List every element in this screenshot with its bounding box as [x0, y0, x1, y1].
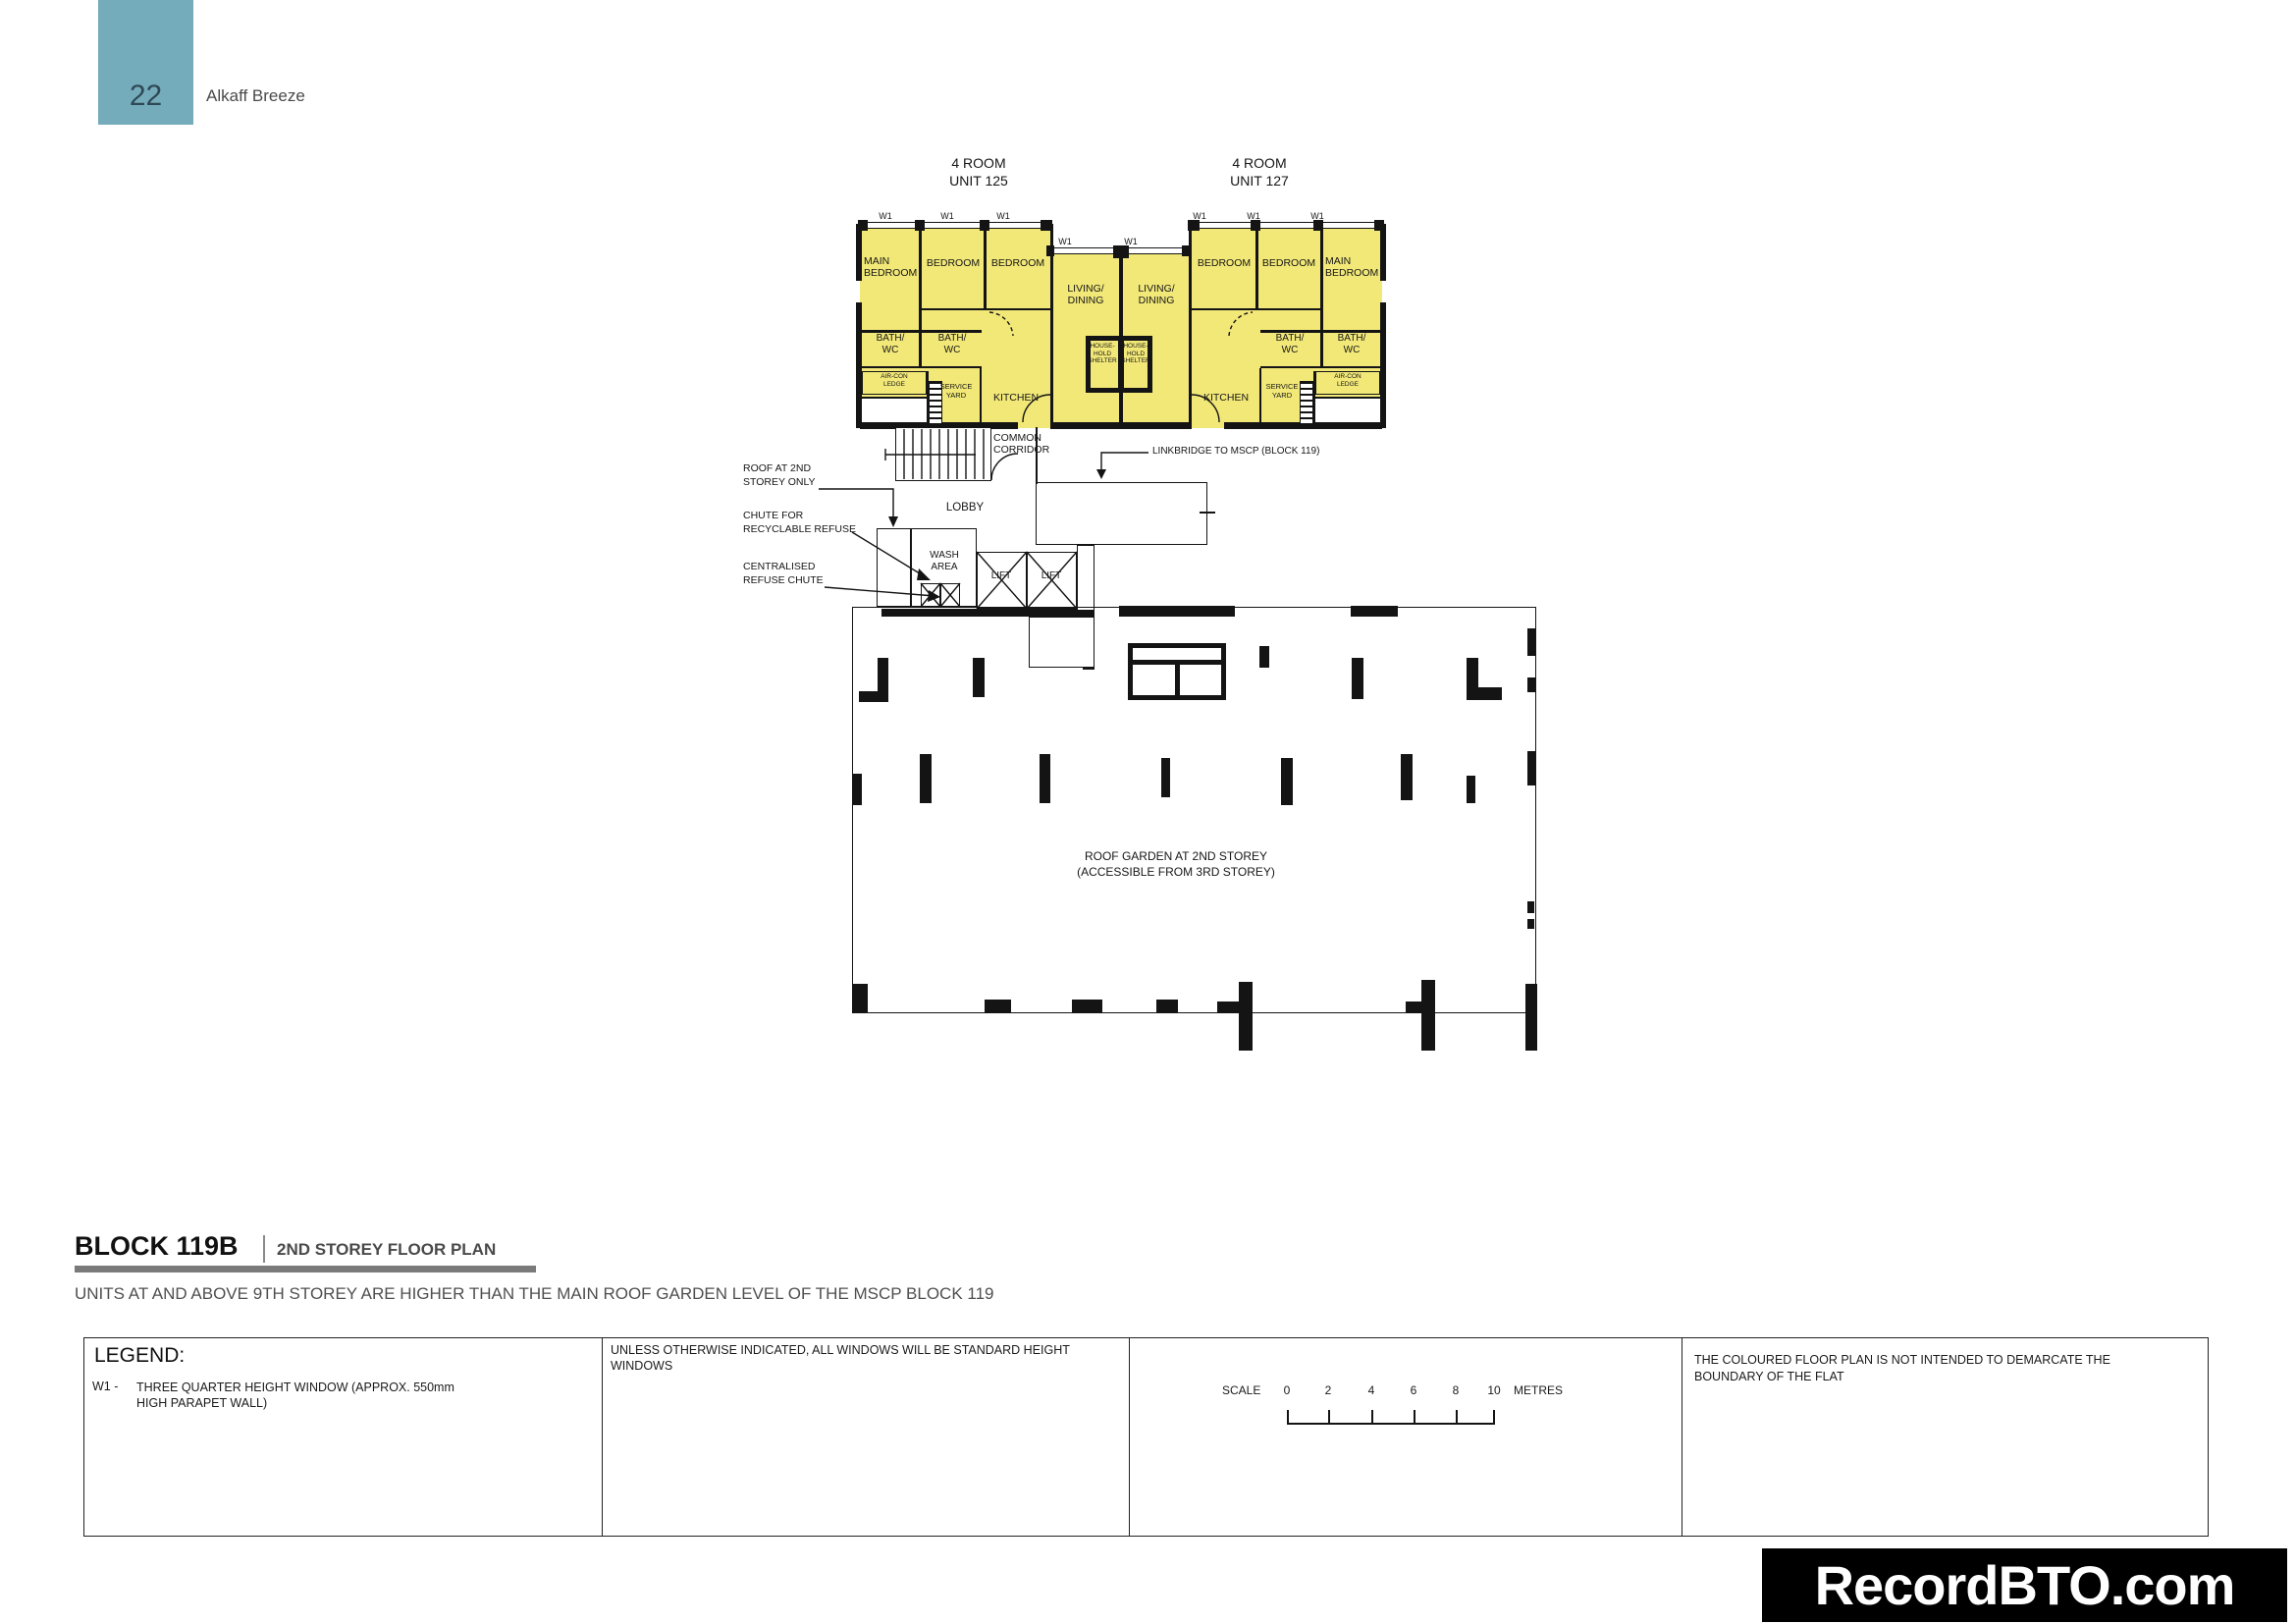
room-bath-wc: BATH/ WC	[931, 333, 974, 355]
legend-table: LEGEND: W1 - THREE QUARTER HEIGHT WINDOW…	[83, 1337, 2209, 1537]
lobby-label: LOBBY	[935, 502, 994, 514]
room-kitchen: KITCHEN	[982, 392, 1050, 404]
room-service-yard: SERVICE YARD	[1264, 383, 1300, 400]
wall-segment	[1374, 220, 1384, 231]
wall-segment	[984, 230, 987, 310]
wall-segment	[1050, 224, 1053, 426]
w1-label: W1	[1303, 211, 1332, 221]
wall-segment	[1320, 333, 1323, 368]
room-household-shelter: HOUSE- HOLD SHELTER	[1088, 343, 1117, 365]
scale-tick: 6	[1411, 1383, 1417, 1397]
plan-title: 2ND STOREY FLOOR PLAN	[277, 1240, 496, 1260]
title-underline	[75, 1266, 536, 1272]
room-aircon-ledge: AIR-CON LEDGE	[1333, 373, 1362, 388]
scale-ruler-tick	[1493, 1410, 1495, 1424]
title-separator	[263, 1235, 265, 1263]
unit-type-127: 4 ROOM	[1201, 155, 1318, 171]
brochure-page: 22 Alkaff Breeze 4 ROOMUNIT 1254 ROOMUNI…	[0, 0, 2296, 1624]
scale-ruler-tick	[1371, 1410, 1373, 1424]
w1-label: W1	[1185, 211, 1214, 221]
wall-segment	[1121, 422, 1192, 429]
room-bedroom: BEDROOM	[988, 257, 1047, 269]
wall-segment	[1380, 302, 1386, 428]
watermark-banner[interactable]: RecordBTO.com	[1762, 1548, 2287, 1622]
scale-tick: 2	[1325, 1383, 1332, 1397]
scale-unit: METRES	[1514, 1383, 1563, 1397]
roof-garden-label-2: (ACCESSIBLE FROM 3RD STOREY)	[1048, 866, 1304, 880]
wall-segment	[1320, 230, 1323, 332]
annotation-recycle-line2: RECYCLABLE REFUSE	[743, 523, 881, 535]
legend-item-description: THREE QUARTER HEIGHT WINDOW (APPROX. 550…	[136, 1380, 480, 1412]
boundary-note-column: THE COLOURED FLOOR PLAN IS NOT INTENDED …	[1682, 1338, 2210, 1536]
legend-heading: LEGEND:	[94, 1344, 185, 1368]
project-name: Alkaff Breeze	[206, 86, 305, 106]
w1-label: W1	[988, 211, 1018, 221]
w1-label: W1	[1116, 237, 1146, 246]
room-service-yard: SERVICE YARD	[938, 383, 974, 400]
room-bedroom: BEDROOM	[924, 257, 983, 269]
room-living-dining: LIVING/ DINING	[1127, 283, 1186, 306]
annotation-refuse-line2: REFUSE CHUTE	[743, 574, 881, 586]
wall-segment	[856, 224, 862, 281]
wall-segment	[858, 220, 868, 231]
refuse-compartment-1	[921, 583, 940, 607]
room-aircon-ledge: AIR-CON LEDGE	[880, 373, 909, 388]
room-bath-wc: BATH/ WC	[1330, 333, 1373, 355]
room-main-bedroom: MAIN BEDROOM	[1325, 255, 1380, 279]
page-number-box: 22	[98, 0, 193, 125]
w1-label: W1	[1050, 237, 1080, 246]
linkbridge-label: LINKBRIDGE TO MSCP (BLOCK 119)	[1152, 446, 1427, 458]
scale-tick: 8	[1453, 1383, 1460, 1397]
scale-column: SCALE 0 2 4 6 8 10 METRES	[1129, 1338, 1682, 1536]
annotation-roof-line2: STOREY ONLY	[743, 476, 871, 488]
room-bath-wc: BATH/ WC	[869, 333, 912, 355]
wall-segment	[1255, 230, 1258, 310]
windows-note-column: UNLESS OTHERWISE INDICATED, ALL WINDOWS …	[602, 1338, 1129, 1536]
boundary-note: THE COLOURED FLOOR PLAN IS NOT INTENDED …	[1694, 1352, 2165, 1385]
scale-tick: 10	[1487, 1383, 1500, 1397]
window-band	[1052, 247, 1119, 254]
w1-label: W1	[1239, 211, 1268, 221]
scale-ruler-tick	[1456, 1410, 1458, 1424]
garden-planter-feature	[1128, 643, 1226, 700]
room-household-shelter: HOUSE- HOLD SHELTER	[1121, 343, 1150, 365]
wall-segment	[856, 302, 862, 428]
wall-segment	[1260, 366, 1380, 368]
scale-ruler-tick	[1328, 1410, 1330, 1424]
scale-ruler	[1287, 1423, 1495, 1425]
room-bedroom: BEDROOM	[1195, 257, 1254, 269]
service-duct	[1300, 381, 1313, 426]
annotation-recycle-line1: CHUTE FOR	[743, 510, 881, 521]
wall-segment	[1190, 308, 1323, 310]
w1-label: W1	[871, 211, 900, 221]
wall-segment	[1380, 224, 1386, 281]
refuse-compartment-2	[940, 583, 960, 607]
wall-segment	[919, 230, 922, 332]
refuse-chute-room	[877, 528, 911, 607]
scale-tick: 0	[1284, 1383, 1291, 1397]
w1-label: W1	[933, 211, 962, 221]
windows-note: UNLESS OTHERWISE INDICATED, ALL WINDOWS …	[611, 1342, 1121, 1375]
lift-shaft	[1077, 545, 1095, 611]
room-bath-wc: BATH/ WC	[1268, 333, 1311, 355]
unit-number-125: UNIT 125	[920, 173, 1038, 189]
floor-plan: 4 ROOMUNIT 1254 ROOMUNIT 127W1W1W1W1W1W1…	[726, 128, 1580, 1100]
annotation-roof-line1: ROOF AT 2ND	[743, 462, 871, 474]
window-band	[1123, 247, 1190, 254]
room-living-dining: LIVING/ DINING	[1056, 283, 1115, 306]
room-kitchen: KITCHEN	[1192, 392, 1260, 404]
block-title: BLOCK 119B	[75, 1231, 239, 1262]
scale-ruler-tick	[1414, 1410, 1415, 1424]
unit-number-127: UNIT 127	[1201, 173, 1318, 189]
wash-area-label: WASH AREA	[920, 550, 969, 572]
lift-label: LIFT	[982, 570, 1021, 582]
scale-ruler-tick	[1287, 1410, 1289, 1424]
lift-label: LIFT	[1032, 570, 1071, 582]
room-main-bedroom: MAIN BEDROOM	[864, 255, 919, 279]
linkbridge-outline	[1036, 482, 1207, 545]
scale-label: SCALE	[1222, 1383, 1260, 1397]
scale-tick: 4	[1368, 1383, 1375, 1397]
roof-garden-label-1: ROOF GARDEN AT 2ND STOREY	[1048, 850, 1304, 864]
legend-item-code: W1 -	[92, 1380, 118, 1393]
room-bedroom: BEDROOM	[1259, 257, 1318, 269]
storey-note: UNITS AT AND ABOVE 9TH STOREY ARE HIGHER…	[75, 1284, 994, 1304]
wall-segment	[862, 366, 982, 368]
lift-shaft-recess	[1029, 617, 1095, 668]
unit-type-125: 4 ROOM	[920, 155, 1038, 171]
watermark-text[interactable]: RecordBTO.com	[1815, 1553, 2235, 1617]
wall-segment	[919, 308, 1052, 310]
window-band	[1194, 222, 1380, 229]
wall-segment	[919, 333, 922, 368]
legend-column: LEGEND: W1 - THREE QUARTER HEIGHT WINDOW…	[84, 1338, 602, 1536]
common-corridor-label: COMMON CORRIDOR	[993, 432, 1080, 456]
stairs-box	[895, 427, 991, 481]
annotation-refuse-line1: CENTRALISED	[743, 561, 881, 572]
window-band	[862, 222, 1048, 229]
page-number: 22	[98, 80, 193, 113]
wall-segment	[1050, 422, 1121, 429]
